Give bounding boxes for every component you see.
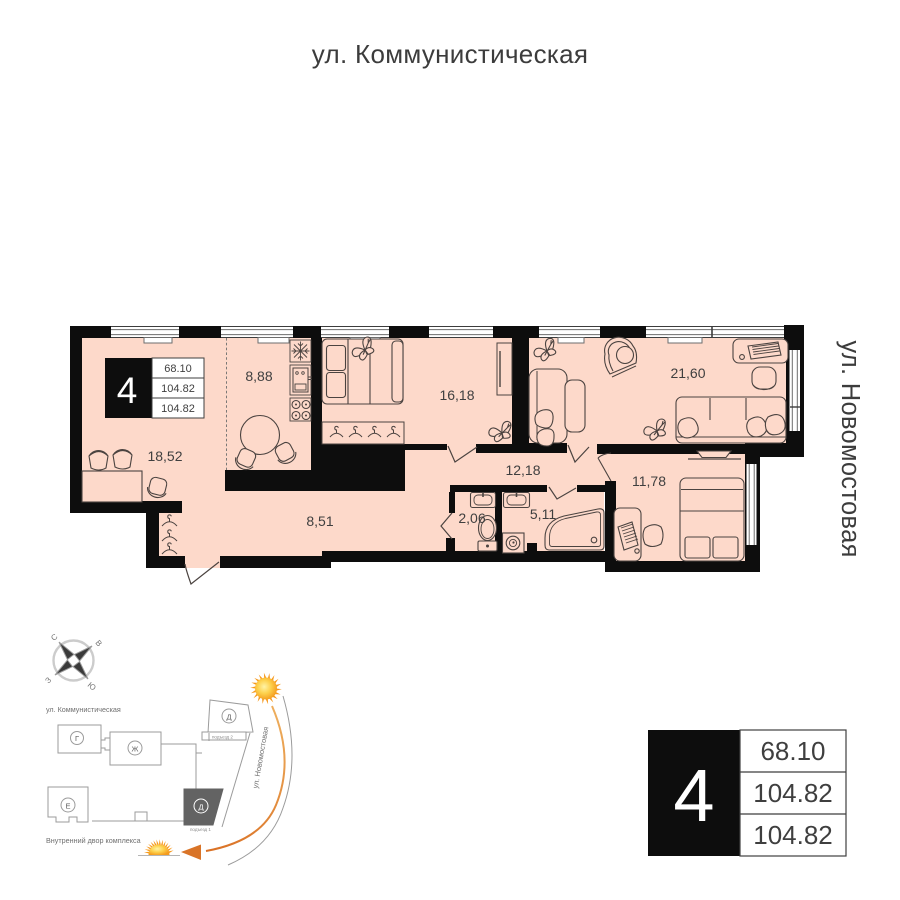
svg-text:С: С — [49, 632, 59, 643]
svg-text:ул. Новомостовая: ул. Новомостовая — [836, 340, 864, 557]
svg-text:68.10: 68.10 — [164, 363, 192, 375]
svg-text:2,06: 2,06 — [458, 510, 485, 526]
svg-text:подъезд 2: подъезд 2 — [212, 735, 233, 740]
svg-text:Е: Е — [65, 801, 70, 810]
svg-text:Д: Д — [198, 802, 203, 811]
svg-text:ул. Коммунистическая: ул. Коммунистическая — [46, 705, 121, 714]
svg-text:Ж: Ж — [132, 744, 139, 753]
svg-text:18,52: 18,52 — [147, 448, 182, 464]
svg-text:Ю: Ю — [86, 680, 98, 692]
svg-text:Г: Г — [75, 734, 79, 743]
svg-text:104.82: 104.82 — [161, 403, 195, 415]
svg-text:4: 4 — [673, 754, 714, 837]
svg-text:Внутренний двор комплекса: Внутренний двор комплекса — [46, 836, 141, 845]
svg-text:12,18: 12,18 — [505, 462, 540, 478]
svg-text:Д: Д — [226, 712, 231, 721]
svg-text:подъезд 1: подъезд 1 — [190, 827, 211, 832]
svg-text:68.10: 68.10 — [760, 736, 825, 766]
svg-text:104.82: 104.82 — [753, 820, 833, 850]
svg-text:11,78: 11,78 — [632, 473, 666, 489]
svg-text:4: 4 — [117, 370, 138, 411]
svg-text:З: З — [43, 675, 53, 685]
svg-text:В: В — [93, 638, 103, 648]
svg-text:8,51: 8,51 — [306, 513, 333, 529]
svg-text:8,88: 8,88 — [245, 368, 272, 384]
svg-text:5,11: 5,11 — [530, 506, 556, 522]
svg-text:16,18: 16,18 — [439, 387, 474, 403]
svg-text:104.82: 104.82 — [161, 383, 195, 395]
svg-text:21,60: 21,60 — [670, 365, 705, 381]
svg-text:104.82: 104.82 — [753, 778, 833, 808]
svg-text:ул. Новомостовая: ул. Новомостовая — [251, 726, 271, 789]
svg-text:ул. Коммунистическая: ул. Коммунистическая — [312, 39, 589, 69]
